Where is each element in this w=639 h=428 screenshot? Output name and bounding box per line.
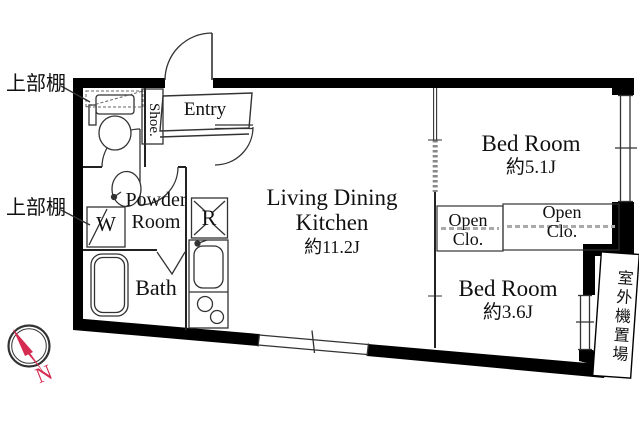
refrigerator-label: R <box>191 206 227 230</box>
wall-top-left <box>73 78 165 88</box>
entrance-door <box>165 33 212 80</box>
ldk-door <box>215 125 253 165</box>
kitchen-sink <box>194 240 223 288</box>
wall-top-right <box>213 78 634 95</box>
bedroom-top-size-label: 約5.1J <box>455 158 607 179</box>
washer-label: W <box>87 213 125 236</box>
bath-folding-door <box>157 252 185 274</box>
ldk-label: Living Dining Kitchen <box>252 186 412 236</box>
open-closet-right-label: Open Clo. <box>528 203 596 242</box>
wall-bottom-left <box>73 318 259 346</box>
ldk-size-label: 約11.2J <box>252 238 412 257</box>
bath-label: Bath <box>127 276 185 300</box>
upper-shelf-label-bottom: 上部棚 <box>6 198 66 220</box>
window-bedroom-top <box>615 95 637 202</box>
stove-burners <box>198 297 224 324</box>
upper-shelf-label-top: 上部棚 <box>6 74 66 96</box>
toilet-fixture <box>89 95 134 150</box>
entry-step <box>160 134 249 137</box>
shoe-cabinet-label: Shoe. <box>142 92 162 148</box>
bathtub <box>91 254 128 316</box>
wall-bottom-right <box>367 344 610 378</box>
floor-plan: 上部棚 上部棚 Shoe. Entry Powder Room W R Bath… <box>0 0 639 428</box>
wall-left <box>73 78 83 330</box>
bedroom-bottom-label: Bed Room <box>432 277 584 302</box>
entry-label: Entry <box>165 100 245 121</box>
open-closet-left-label: Open Clo. <box>434 211 502 250</box>
powder-room-label: Powder Room <box>114 190 198 233</box>
bedroom-top-label: Bed Room <box>455 132 607 157</box>
kitchen-counter <box>189 240 228 328</box>
window-ldk-bottom <box>258 331 369 357</box>
bedroom-bottom-size-label: 約3.6J <box>432 303 584 324</box>
compass-needle-blade <box>13 329 33 356</box>
